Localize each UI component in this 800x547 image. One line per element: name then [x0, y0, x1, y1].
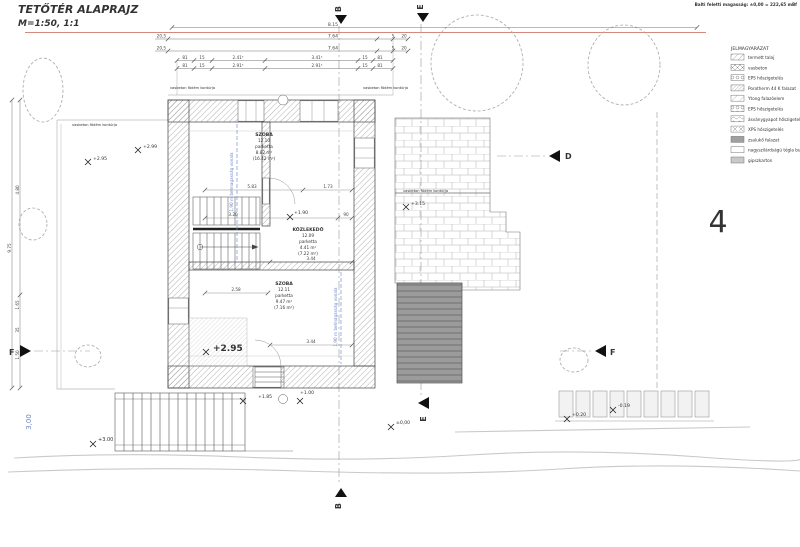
svg-text:15: 15: [199, 55, 205, 60]
svg-text:1.65: 1.65: [15, 300, 20, 310]
elevation-value-main: +2.95: [213, 344, 243, 354]
legend-swatch-cross: [731, 64, 744, 70]
room-number: 12.10: [258, 138, 270, 143]
door: [263, 178, 269, 204]
room-label-szoba-2: SZOBA 12.11 parketta 9.47 m² (7.16 m²): [274, 281, 294, 310]
legend-swatch-fine-diagonal: [731, 54, 744, 60]
svg-text:F: F: [9, 348, 14, 357]
blue-dimension: 3,00: [25, 414, 33, 430]
svg-text:3.41⁵: 3.41⁵: [311, 55, 322, 60]
door-swings: [255, 178, 295, 366]
room-floor: parketta: [255, 144, 273, 149]
legend-swatch-light-gray: [731, 157, 744, 163]
svg-text:3.44: 3.44: [306, 339, 316, 344]
legend-swatch-x: [731, 126, 744, 132]
svg-text:ásványgyapot hőszigetelés: ásványgyapot hőszigetelés: [748, 117, 800, 122]
svg-text:D: D: [565, 152, 572, 161]
svg-text:81: 81: [377, 63, 383, 68]
svg-text:E: E: [419, 416, 428, 421]
elevation-value: -0.19: [618, 403, 630, 409]
room-floor: parketta: [275, 293, 293, 298]
room-area: 9.47 m²: [276, 299, 293, 304]
slab-contour-label: vasbeton födém kontúrja: [363, 86, 408, 90]
svg-text:Porotherm 44 K falazat: Porotherm 44 K falazat: [748, 86, 796, 91]
section-marker-b-bottom: B: [334, 488, 347, 509]
svg-text:20,5: 20,5: [157, 34, 167, 39]
svg-text:4.80: 4.80: [15, 185, 20, 195]
headroom-label: 1,90 m belmagasság vonala: [229, 152, 234, 212]
bush-icon: [75, 345, 101, 367]
svg-text:gipszkarton: gipszkarton: [748, 158, 773, 163]
elevation-value: +2.99: [143, 144, 157, 150]
room-floor: parketta: [299, 239, 317, 244]
svg-text:7.64: 7.64: [328, 46, 338, 52]
exterior-stair: [115, 393, 293, 451]
svg-text:81: 81: [182, 55, 188, 60]
elevation-value: +3.15: [411, 201, 425, 207]
svg-text:zsalukő falazat: zsalukő falazat: [748, 137, 780, 142]
svg-text:5: 5: [392, 46, 395, 51]
svg-text:7.64: 7.64: [328, 34, 338, 40]
room-area-total: (7.16 m²): [274, 305, 294, 310]
legend-swatch-dense-diagonal: [731, 85, 744, 91]
svg-text:F: F: [610, 348, 615, 357]
room-area-total: (16.42 m²): [253, 156, 276, 161]
legend-labels: termett talaj vasbeton EPS hőszigetelés …: [747, 55, 800, 163]
gray-slab-area: [397, 283, 462, 383]
section-marker-e-bottom: E: [418, 397, 429, 422]
legend-swatch-wave: [731, 116, 744, 122]
window: [300, 101, 338, 121]
room-name: KÖZLEKEDŐ: [292, 226, 323, 233]
benchmark-bubble: [278, 95, 288, 105]
legend-swatch-outline-white: [731, 147, 744, 153]
room-area-total: (7.22 m²): [298, 251, 318, 256]
svg-text:B: B: [334, 503, 343, 509]
room-area: 8.82 m²: [256, 150, 273, 155]
svg-text:2.91⁵: 2.91⁵: [311, 63, 322, 68]
elevation-value: +0.20: [572, 412, 586, 418]
svg-text:81: 81: [377, 55, 383, 60]
svg-text:1.73: 1.73: [323, 184, 333, 189]
slab-contour-label: vasbeton födém kontúrja: [170, 86, 215, 90]
room-area: 4.41 m²: [300, 245, 317, 250]
section-marker-f-right: F: [595, 345, 615, 357]
top-dimension-chain: [155, 28, 697, 96]
svg-text:EPS hőszigetelés: EPS hőszigetelés: [748, 76, 783, 81]
room-number: 12.11: [278, 287, 290, 292]
svg-text:2.91⁵: 2.91⁵: [232, 63, 243, 68]
svg-text:EPS hőszigetelés: EPS hőszigetelés: [748, 107, 783, 112]
headroom-label: 1,90 m belmagasság vonala: [333, 287, 338, 347]
interior-stairs: [193, 197, 260, 269]
svg-text:20,5: 20,5: [157, 46, 167, 51]
tree-icon: [23, 58, 63, 122]
tree-icon: [431, 15, 523, 111]
room-label-szoba-1: SZOBA 12.10 parketta 8.82 m² (16.42 m²): [253, 132, 276, 161]
svg-text:8.15: 8.15: [328, 22, 338, 28]
bush-icon: [19, 208, 47, 240]
window: [169, 298, 188, 324]
page-title: TETŐTÉR ALAPRAJZ: [18, 2, 139, 16]
svg-text:Ytong falazóelem: Ytong falazóelem: [747, 96, 784, 101]
room-label-kozlekedo: KÖZLEKEDŐ 12.09 parketta 4.41 m² (7.22 m…: [292, 226, 323, 256]
window: [238, 101, 264, 121]
elevation-value: +2.95: [93, 156, 107, 162]
elevation-value: ±0,00: [396, 420, 410, 426]
svg-text:2.41⁵: 2.41⁵: [232, 55, 243, 60]
svg-text:2.58: 2.58: [231, 287, 241, 292]
room-number: 12.09: [302, 233, 314, 238]
datum-note: Balti feletti magasság: ±0,00 = 222,65 m…: [695, 2, 798, 7]
drawing-sheet: TETŐTÉR ALAPRAJZ M=1:50, 1:1 Balti felet…: [0, 0, 800, 547]
svg-text:nagyszilárdságú tégla burkolat: nagyszilárdságú tégla burkolat: [748, 148, 800, 153]
sheet-number: 4: [708, 205, 727, 240]
svg-text:termett talaj: termett talaj: [748, 55, 774, 60]
svg-text:3.44: 3.44: [306, 256, 316, 261]
tree-icon: [588, 25, 660, 105]
svg-text:9.75: 9.75: [7, 243, 12, 253]
legend-title: JELMAGYARÁZAT: [730, 45, 769, 52]
section-marker-d: D: [549, 150, 572, 162]
svg-text:vasbeton: vasbeton: [748, 65, 768, 70]
svg-text:81: 81: [182, 63, 188, 68]
svg-text:15: 15: [362, 55, 368, 60]
svg-text:B: B: [334, 6, 343, 12]
elevation-value: +1.90: [294, 210, 308, 216]
low-headroom-area: [189, 318, 247, 366]
svg-text:5.83: 5.83: [247, 184, 257, 189]
section-marker-f-left: F: [9, 345, 31, 357]
legend-swatch-solid-gray: [731, 136, 744, 142]
svg-text:E: E: [416, 4, 425, 9]
floor-plan-drawing: TETŐTÉR ALAPRAJZ M=1:50, 1:1 Balti felet…: [0, 0, 800, 547]
legend: JELMAGYARÁZAT termett talaj vasbeton EPS…: [730, 45, 800, 163]
legend-swatch-wide-diagonal: [731, 95, 744, 101]
svg-text:3.20: 3.20: [228, 212, 238, 217]
section-marker-b-top: B: [334, 6, 347, 24]
left-dimension-chain: [12, 100, 20, 388]
svg-text:5: 5: [392, 34, 395, 39]
legend-swatch-bubble: [731, 75, 744, 81]
page-scale: M=1:50, 1:1: [18, 19, 80, 29]
elevation-value: +3.00: [98, 437, 113, 443]
elevation-value: +1.00: [300, 390, 314, 396]
svg-text:20: 20: [401, 34, 407, 39]
legend-swatch-bubble-2: [731, 106, 744, 112]
door: [355, 138, 374, 168]
slab-contour-label: vasbeton födém kontúrja: [72, 123, 117, 127]
svg-text:90: 90: [343, 212, 349, 217]
svg-text:15: 15: [199, 63, 205, 68]
svg-text:20: 20: [401, 46, 407, 51]
top-dimension-values: 8.15 20,5 7.64 5 20 20,5 7.64 5 20 81 15…: [157, 22, 407, 68]
svg-text:35: 35: [15, 327, 20, 333]
elevation-value: +1.85: [258, 394, 272, 400]
svg-text:XPS hőszigetelés: XPS hőszigetelés: [748, 127, 784, 132]
svg-text:1.50: 1.50: [15, 350, 20, 360]
section-marker-e-top: E: [416, 4, 429, 22]
bush-icon: [560, 348, 588, 372]
svg-text:15: 15: [362, 63, 368, 68]
stair-steps-bubble: [279, 395, 288, 404]
